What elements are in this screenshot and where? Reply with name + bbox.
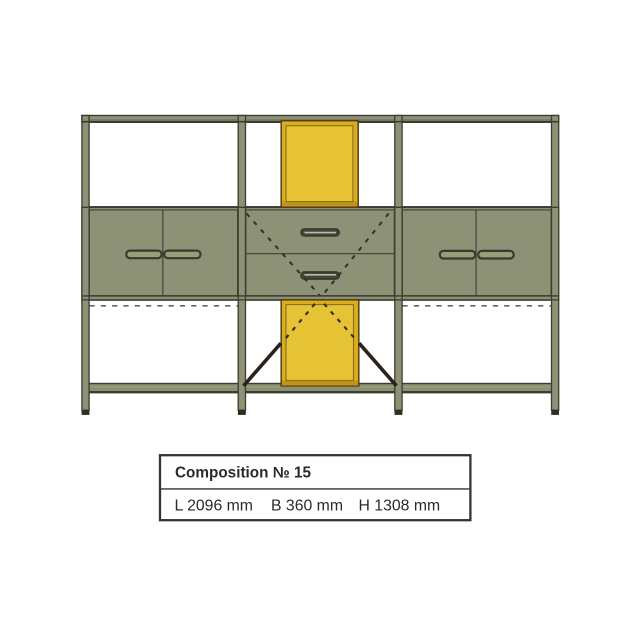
svg-text:H 1308 mm: H 1308 mm xyxy=(359,498,441,515)
svg-text:Composition № 15: Composition № 15 xyxy=(175,465,312,482)
svg-text:B 360 mm: B 360 mm xyxy=(271,498,343,515)
svg-text:L 2096 mm: L 2096 mm xyxy=(175,498,253,515)
